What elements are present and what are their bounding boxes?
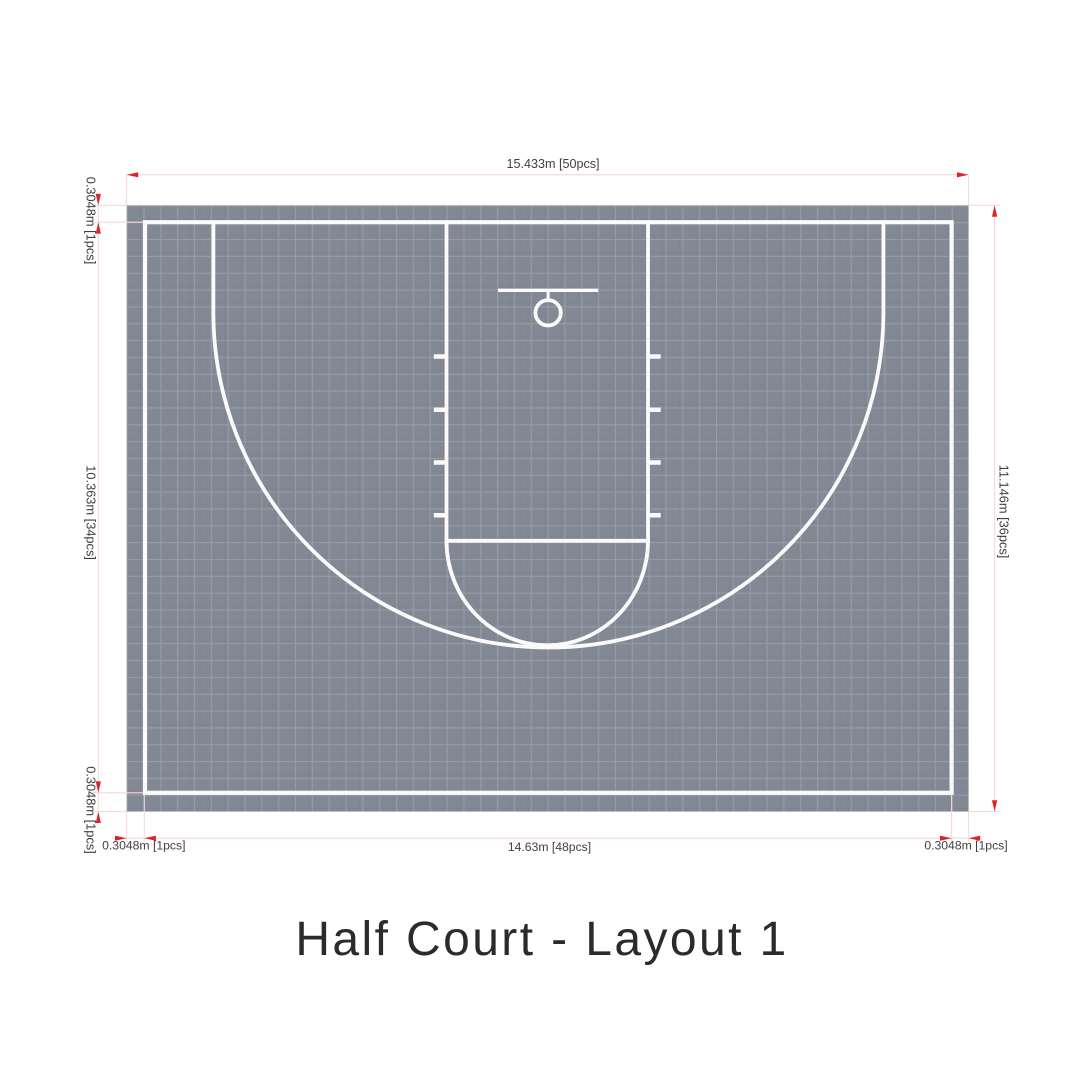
svg-text:0.3048m [1pcs]: 0.3048m [1pcs] [924, 839, 1007, 853]
svg-text:11.146m [36pcs]: 11.146m [36pcs] [997, 465, 1012, 559]
svg-text:14.63m [48pcs]: 14.63m [48pcs] [508, 840, 591, 854]
svg-text:0.3048m [1pcs]: 0.3048m [1pcs] [102, 839, 185, 853]
svg-text:0.3048m [1pcs]: 0.3048m [1pcs] [83, 766, 98, 854]
svg-text:Half Court - Layout 1: Half Court - Layout 1 [295, 913, 788, 966]
svg-text:0.3048m [1pcs]: 0.3048m [1pcs] [84, 177, 99, 265]
svg-text:15.433m [50pcs]: 15.433m [50pcs] [506, 157, 599, 171]
svg-text:10.363m [34pcs]: 10.363m [34pcs] [83, 465, 98, 560]
